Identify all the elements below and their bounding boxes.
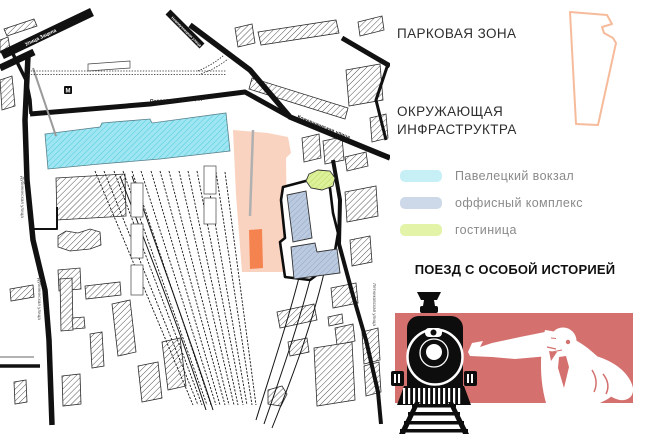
city-map: M Улица Зацепа Новокузнецкая улица Павел… xyxy=(0,0,390,436)
legend-swatch-office xyxy=(400,197,442,209)
street-label-west-2: Дубининская улица xyxy=(37,278,42,320)
legend-row-hotel: гостиница xyxy=(400,224,583,236)
square-label: Павелецкая площадь xyxy=(150,96,205,105)
legend-row-station: Павелецкий вокзал xyxy=(400,170,583,182)
park-zone-title: ПАРКОВАЯ ЗОНА xyxy=(397,26,516,41)
infra-title: ОКРУЖАЮЩАЯ ИНФРАСТРУКТРА xyxy=(397,103,517,138)
legend-label-hotel: гостиница xyxy=(455,223,517,237)
train-title: ПОЕЗД С ОСОБОЙ ИСТОРИЕЙ xyxy=(390,262,640,277)
legend-label-station: Павелецкий вокзал xyxy=(455,169,574,183)
hotel-building xyxy=(306,170,335,190)
legend-swatch-hotel xyxy=(400,224,442,236)
street-label-southeast: Летниковская улица xyxy=(372,283,377,326)
metro-icon: M xyxy=(64,86,72,95)
presentation-board: M Улица Зацепа Новокузнецкая улица Павел… xyxy=(0,0,650,436)
infra-title-line2: ИНФРАСТРУКТРА xyxy=(397,121,517,139)
tram-line xyxy=(28,55,228,75)
legend-swatch-station xyxy=(400,170,442,182)
infra-title-line1: ОКРУЖАЮЩАЯ xyxy=(397,103,517,121)
legend-label-office: оффисный комплекс xyxy=(455,196,583,210)
map-legend: Павелецкий вокзал оффисный комплекс гост… xyxy=(400,170,583,251)
site-outline-shape xyxy=(540,0,650,140)
train-illustration xyxy=(390,288,650,436)
rail-track xyxy=(399,402,469,434)
metro-letter: M xyxy=(66,89,71,95)
pedestrian-bridge xyxy=(33,68,56,136)
street-label-west-1: Дубининская улица xyxy=(20,176,25,218)
legend-row-office: оффисный комплекс xyxy=(400,197,583,209)
accent-building xyxy=(249,229,263,269)
station-building xyxy=(45,113,230,169)
